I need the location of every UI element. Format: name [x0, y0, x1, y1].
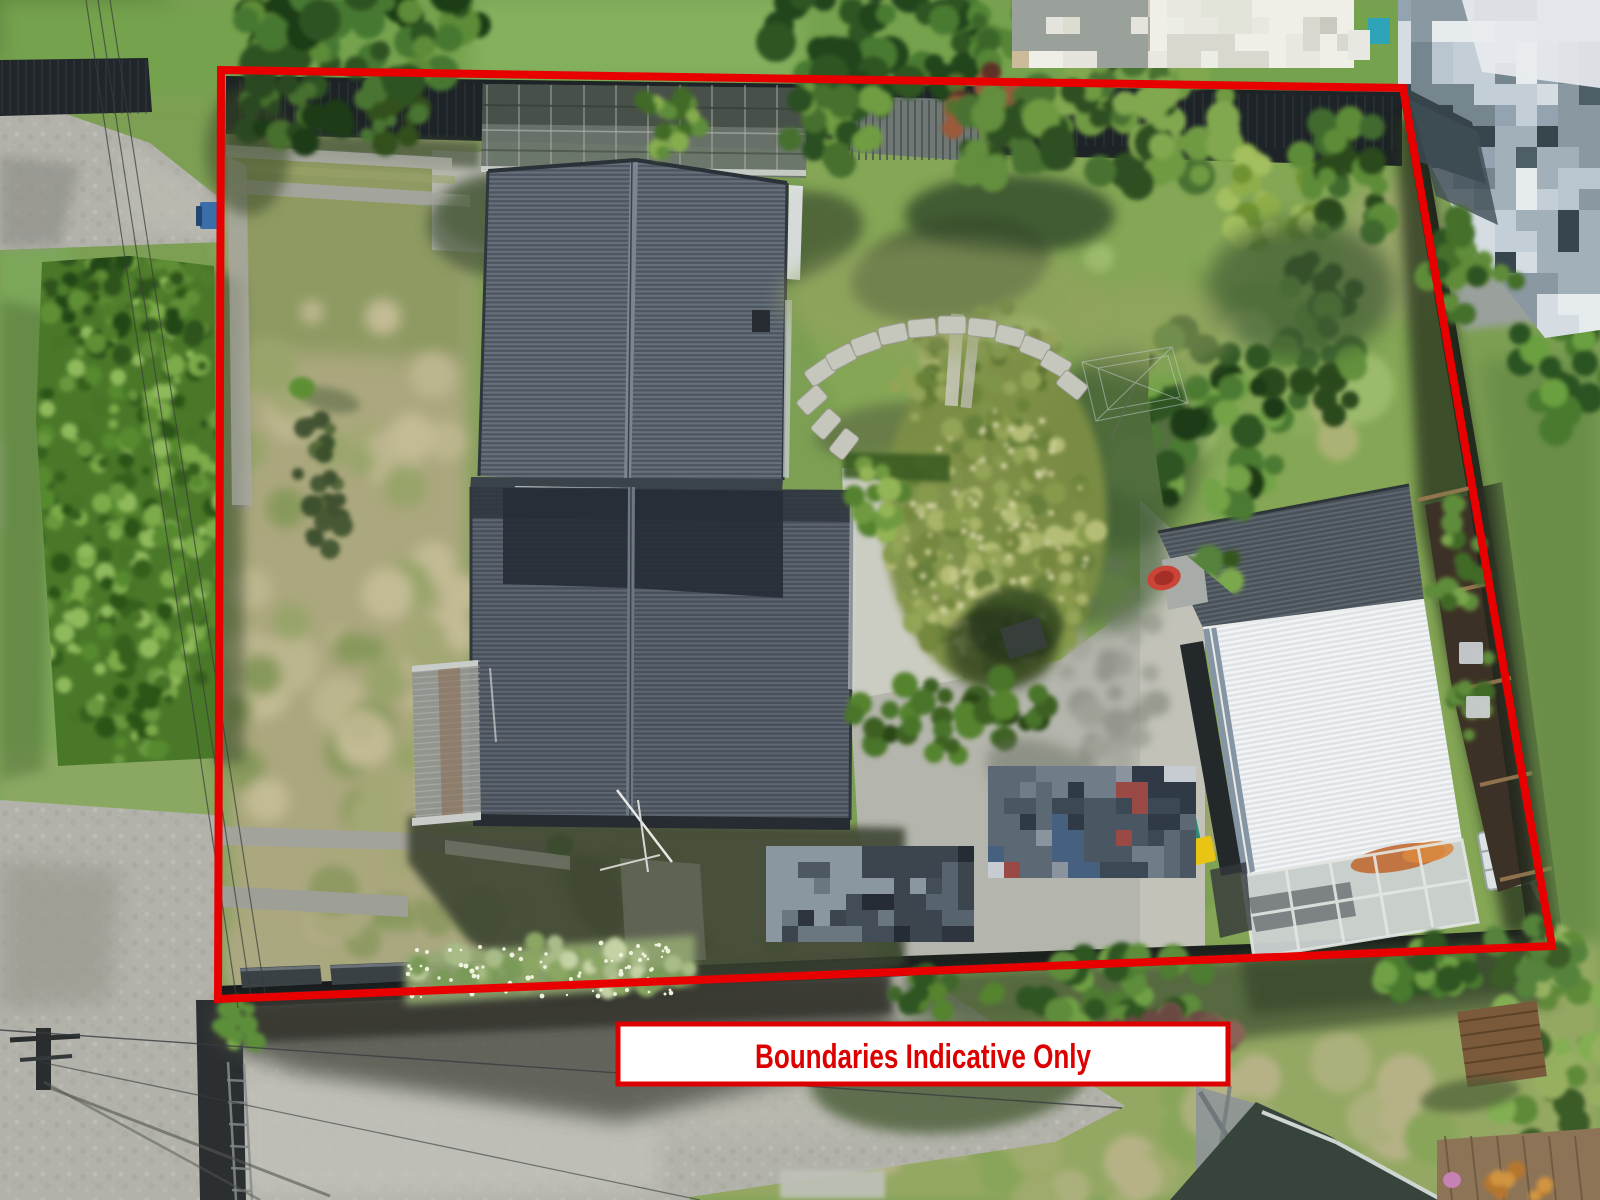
svg-text:Boundaries Indicative Only: Boundaries Indicative Only	[755, 1038, 1091, 1076]
